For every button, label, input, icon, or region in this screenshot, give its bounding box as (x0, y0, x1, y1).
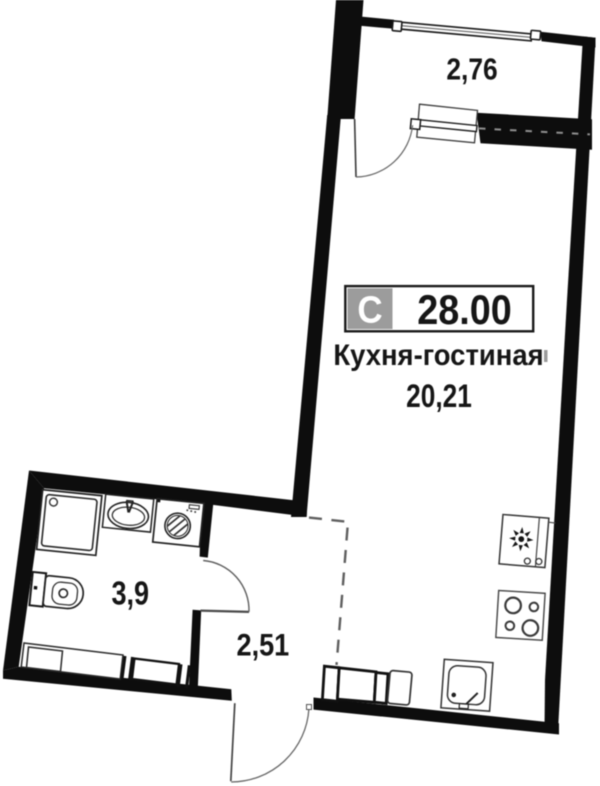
svg-text:2,51: 2,51 (237, 627, 290, 662)
svg-text:20,21: 20,21 (406, 380, 472, 415)
svg-text:28.00: 28.00 (417, 287, 512, 333)
svg-text:С: С (357, 288, 382, 331)
svg-text:Кухня-гостиная: Кухня-гостиная (333, 339, 543, 372)
svg-text:2,76: 2,76 (446, 53, 497, 87)
svg-text:3,9: 3,9 (112, 576, 150, 612)
